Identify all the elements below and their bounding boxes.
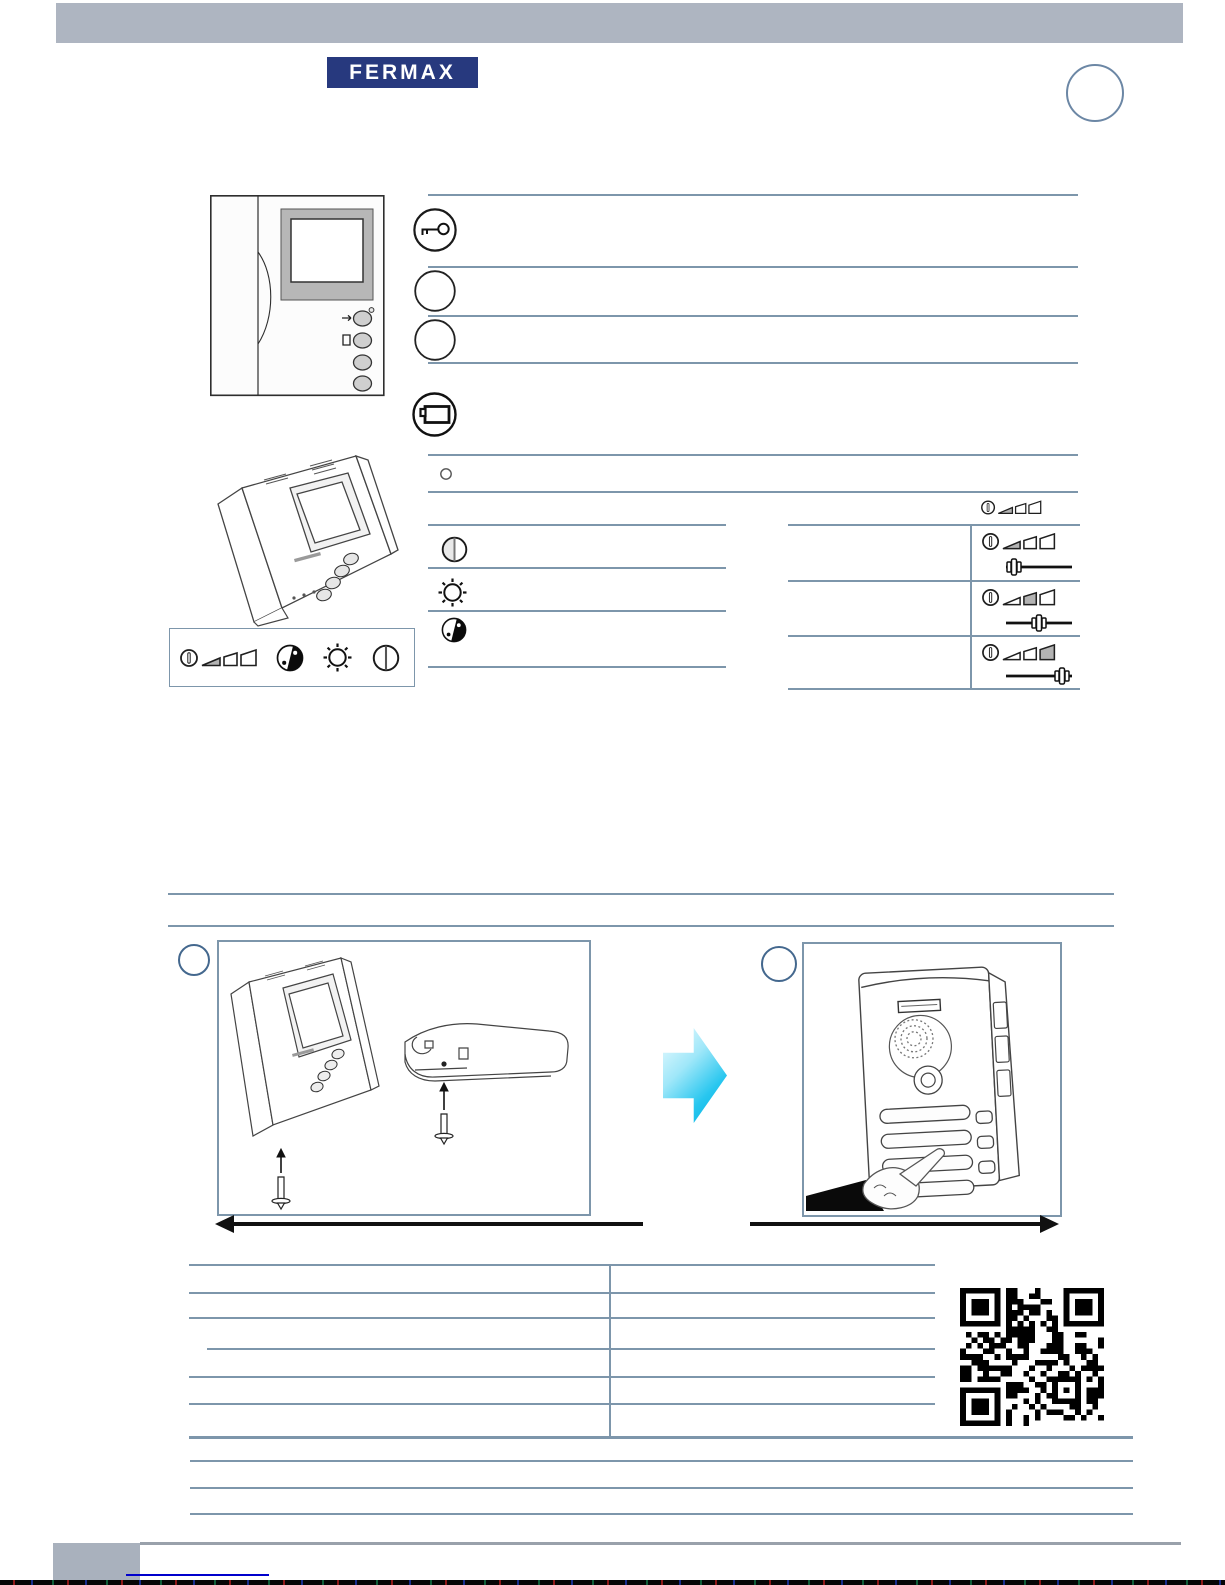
page-edge-strip [0, 1580, 1225, 1585]
spec-table-line [189, 1264, 935, 1266]
feature-row-line [428, 491, 1078, 493]
volume-table-divider [970, 524, 972, 690]
screw-up-arrow [277, 1149, 285, 1173]
footer-rule [190, 1460, 1133, 1462]
control-strip [169, 628, 415, 687]
volume-table-line [788, 580, 1080, 582]
colour-icon [276, 644, 304, 672]
right-span-arrowhead [1040, 1215, 1059, 1233]
qr-code [960, 1288, 1104, 1426]
left-span-arrow [232, 1222, 643, 1226]
volume-levels-icon [180, 646, 264, 670]
feature-row-line [428, 454, 1078, 456]
feature-row-line [428, 266, 1078, 268]
logo-text: FERMAX [349, 62, 456, 83]
spec-table-line [189, 1403, 935, 1405]
bracket-profile [405, 1024, 568, 1081]
volume-levels-icon [981, 498, 1047, 517]
adjustment-row-line [428, 524, 726, 526]
volume-level-icon [982, 586, 1062, 609]
brightness-icon [322, 642, 353, 673]
manual-page: FERMAX [0, 0, 1225, 1585]
contrast-icon [372, 644, 400, 672]
spec-table-line [189, 1292, 935, 1294]
fermax-logo: FERMAX [327, 57, 478, 88]
revision-badge-circle [1066, 64, 1124, 122]
dot-circle-icon [440, 468, 452, 480]
blue-right-arrow-icon [663, 1028, 727, 1123]
monitor-front-diagram [210, 195, 385, 396]
volume-slider-icon [1002, 666, 1076, 686]
monitor-install-diagram [219, 942, 585, 1210]
step-1-badge [178, 944, 210, 976]
volume-table-line [788, 524, 1080, 526]
volume-level-icon [982, 641, 1062, 664]
volume-level-icon [982, 530, 1062, 553]
circle-icon [414, 319, 456, 361]
camera-icon [412, 392, 457, 437]
right-span-arrow [750, 1222, 1042, 1226]
contrast-icon [441, 536, 468, 563]
adjustment-row-line [428, 567, 726, 569]
spec-table-line [189, 1376, 935, 1378]
volume-table-line [788, 688, 1080, 690]
door-key-icon [413, 208, 457, 252]
footer-rule [190, 1513, 1133, 1515]
volume-table-line [788, 635, 1080, 637]
spec-table-bottom-line [189, 1436, 1133, 1439]
section-separator [168, 893, 1114, 895]
volume-slider-icon [1002, 613, 1076, 633]
monitor-perspective-diagram [198, 446, 408, 626]
spec-table-divider [609, 1264, 611, 1438]
screw [272, 1177, 290, 1209]
adjustment-row-line [428, 666, 726, 668]
header-bar [56, 3, 1183, 43]
screw [435, 1114, 453, 1144]
door-panel-diagram [804, 944, 1056, 1211]
feature-row-line [428, 194, 1078, 196]
spec-table-line-indented [207, 1348, 935, 1350]
volume-slider-icon [1002, 557, 1076, 577]
screw-up-arrow [440, 1083, 448, 1110]
footer-gray-line [140, 1542, 1181, 1545]
adjustment-row-line [428, 610, 726, 612]
circle-icon [414, 270, 456, 312]
section-separator [168, 925, 1114, 927]
page-number-block [53, 1543, 140, 1582]
feature-row-line [428, 362, 1078, 364]
spec-table-line [189, 1317, 935, 1319]
step-2-badge [761, 946, 797, 982]
footer-rule [190, 1487, 1133, 1489]
brightness-icon [437, 577, 468, 608]
feature-row-line [428, 315, 1078, 317]
colour-icon [441, 617, 467, 643]
footer-link-underline [126, 1574, 269, 1576]
